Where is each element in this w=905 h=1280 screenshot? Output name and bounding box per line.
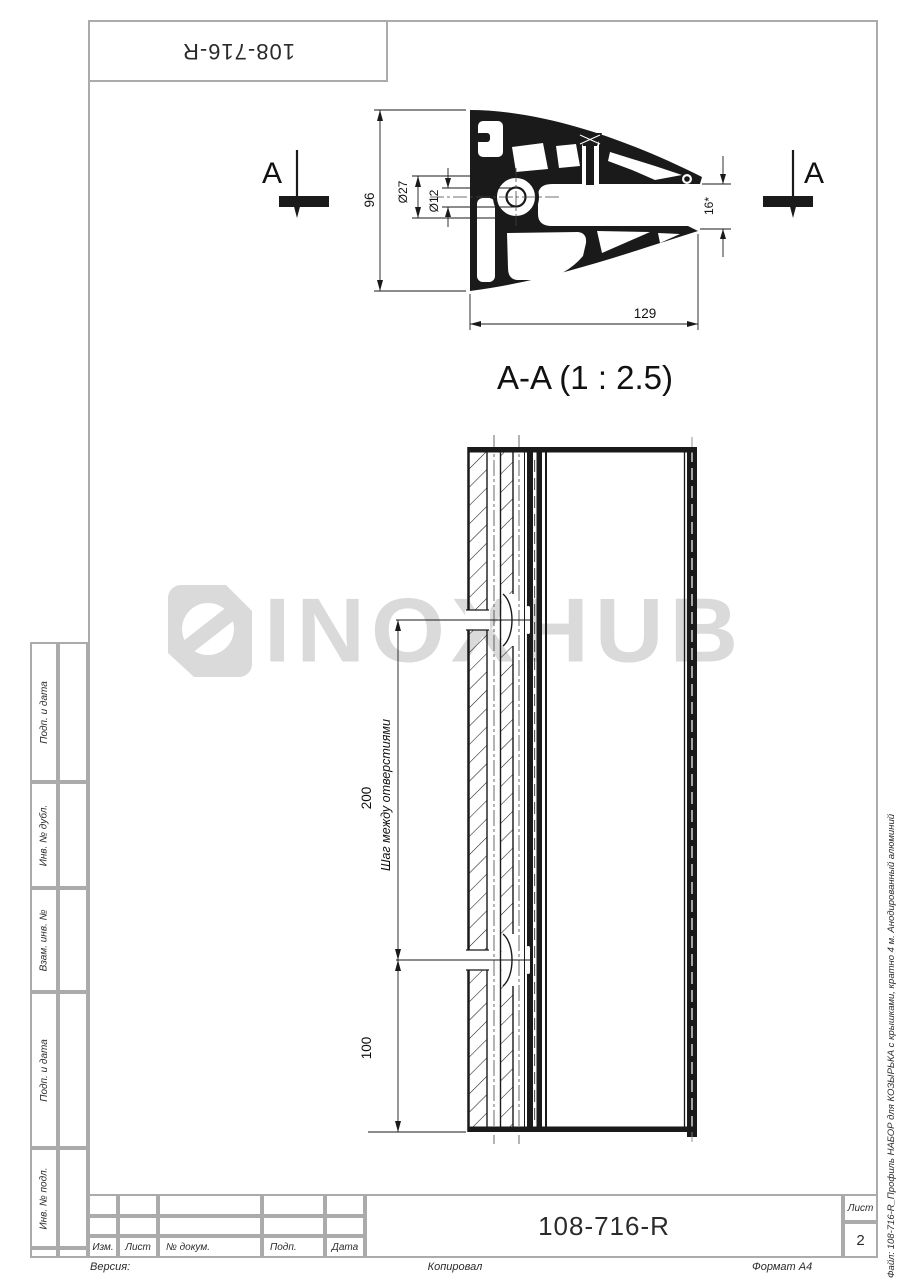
tb-cell — [158, 1194, 262, 1216]
dim-129: 129 — [634, 306, 657, 321]
dim-200: 200 — [359, 787, 374, 810]
sidebar-empty-cell — [58, 1148, 88, 1248]
sidebar-empty-cell — [58, 642, 88, 782]
tb-cell — [118, 1194, 158, 1216]
section-letter-right: A — [804, 157, 824, 190]
tb-col-dokum: № докум. — [158, 1236, 262, 1258]
drawing-canvas: A A — [0, 0, 905, 1280]
tb-cell — [262, 1216, 325, 1236]
top-designation-stamp: 108-716-R — [88, 20, 388, 82]
sidebar-stub — [30, 1248, 58, 1258]
sidebar-cell-inv-podl: Инв. № подл. — [30, 1148, 58, 1248]
sidebar-label: Подп. и дата — [39, 681, 50, 744]
sidebar-label: Инв. № дубл. — [39, 804, 50, 866]
section-title: A-A (1 : 2.5) — [497, 359, 673, 396]
dim-16: 16* — [702, 197, 716, 215]
tb-col-label: Изм. — [92, 1242, 113, 1253]
sidebar-cell-vzam-inv: Взам. инв. № — [30, 888, 58, 992]
tb-cell — [325, 1194, 365, 1216]
tb-cell — [118, 1216, 158, 1236]
profile-dim-texts: 200 Шаг между отверстиями 100 — [359, 719, 393, 1059]
dim-96: 96 — [362, 192, 377, 207]
tb-col-label: № докум. — [166, 1242, 210, 1253]
top-designation-text: 108-716-R — [182, 38, 295, 64]
tb-sheet-number-text: 2 — [856, 1232, 864, 1249]
section-dim-texts: 96 Ø27 Ø12 129 16* A-A (1 : 2.5) — [362, 180, 716, 396]
dim-d12: Ø12 — [427, 189, 441, 212]
file-info-text: Файл: 108-716-R_Профиль НАБОР для КОЗЫРЬ… — [886, 814, 897, 1278]
profile-long-view — [465, 435, 697, 1144]
tb-designation-text: 108-716-R — [538, 1211, 670, 1242]
tb-col-label: Подп. — [270, 1242, 297, 1253]
tb-cell — [158, 1216, 262, 1236]
sidebar-empty-cell — [58, 992, 88, 1148]
section-letter-left: A — [262, 157, 282, 190]
sidebar-cell-podp-data-1: Подп. и дата — [30, 642, 58, 782]
sidebar-cell-inv-dubl: Инв. № дубл. — [30, 782, 58, 888]
sidebar-label: Взам. инв. № — [39, 909, 50, 971]
version-label: Версия: — [90, 1261, 130, 1273]
tb-cell — [262, 1194, 325, 1216]
sidebar-empty-cell — [58, 782, 88, 888]
tb-cell — [88, 1216, 118, 1236]
cross-section-view — [430, 110, 702, 291]
tb-sheet-label: Лист — [843, 1194, 878, 1222]
tb-cell — [325, 1216, 365, 1236]
sidebar-label: Инв. № подл. — [39, 1167, 50, 1229]
tb-col-podp: Подп. — [262, 1236, 325, 1258]
copied-label: Копировал — [410, 1261, 500, 1273]
tb-col-label: Лист — [125, 1242, 151, 1253]
dim-d27: Ø27 — [396, 180, 410, 203]
sidebar-label: Подп. и дата — [39, 1039, 50, 1102]
sidebar-stub — [58, 1248, 88, 1258]
tb-col-data: Дата — [325, 1236, 365, 1258]
dim-100: 100 — [359, 1037, 374, 1060]
tb-designation: 108-716-R — [365, 1194, 843, 1258]
tb-sheet-number: 2 — [843, 1222, 878, 1258]
drawing-sheet: INOXHUB — [0, 0, 905, 1280]
format-label: Формат A4 — [752, 1261, 812, 1273]
tb-col-label: Дата — [332, 1242, 358, 1253]
sidebar-empty-cell — [58, 888, 88, 992]
tb-col-izm: Изм. — [88, 1236, 118, 1258]
dim-200-label: Шаг между отверстиями — [379, 719, 393, 871]
tb-sheet-label-text: Лист — [848, 1203, 874, 1214]
tb-cell — [88, 1194, 118, 1216]
sidebar-cell-podp-data-2: Подп. и дата — [30, 992, 58, 1148]
tb-col-list: Лист — [118, 1236, 158, 1258]
